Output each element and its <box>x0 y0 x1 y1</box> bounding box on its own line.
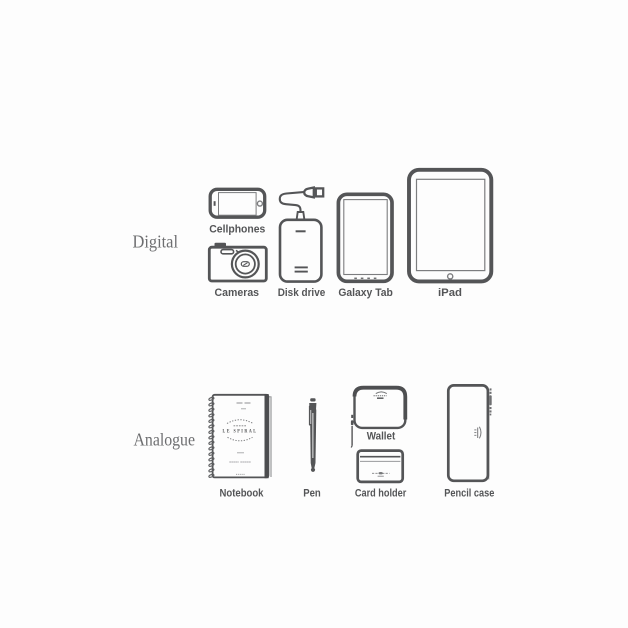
svg-text:Pen: Pen <box>303 488 321 500</box>
svg-text:Pencil case: Pencil case <box>444 487 494 499</box>
svg-text:Cameras: Cameras <box>215 287 260 299</box>
svg-text:iPad: iPad <box>438 287 462 299</box>
svg-text:LE SPIRAL: LE SPIRAL <box>223 429 258 435</box>
svg-text:Digital: Digital <box>133 231 179 251</box>
svg-text:Analogue: Analogue <box>134 430 196 450</box>
svg-text:Cellphones: Cellphones <box>209 223 265 235</box>
svg-text:Notebook: Notebook <box>220 488 265 500</box>
svg-text:Disk drive: Disk drive <box>278 287 326 299</box>
svg-text:Card holder: Card holder <box>355 487 407 499</box>
svg-text:Galaxy Tab: Galaxy Tab <box>338 287 393 299</box>
svg-text:Wallet: Wallet <box>367 431 396 443</box>
